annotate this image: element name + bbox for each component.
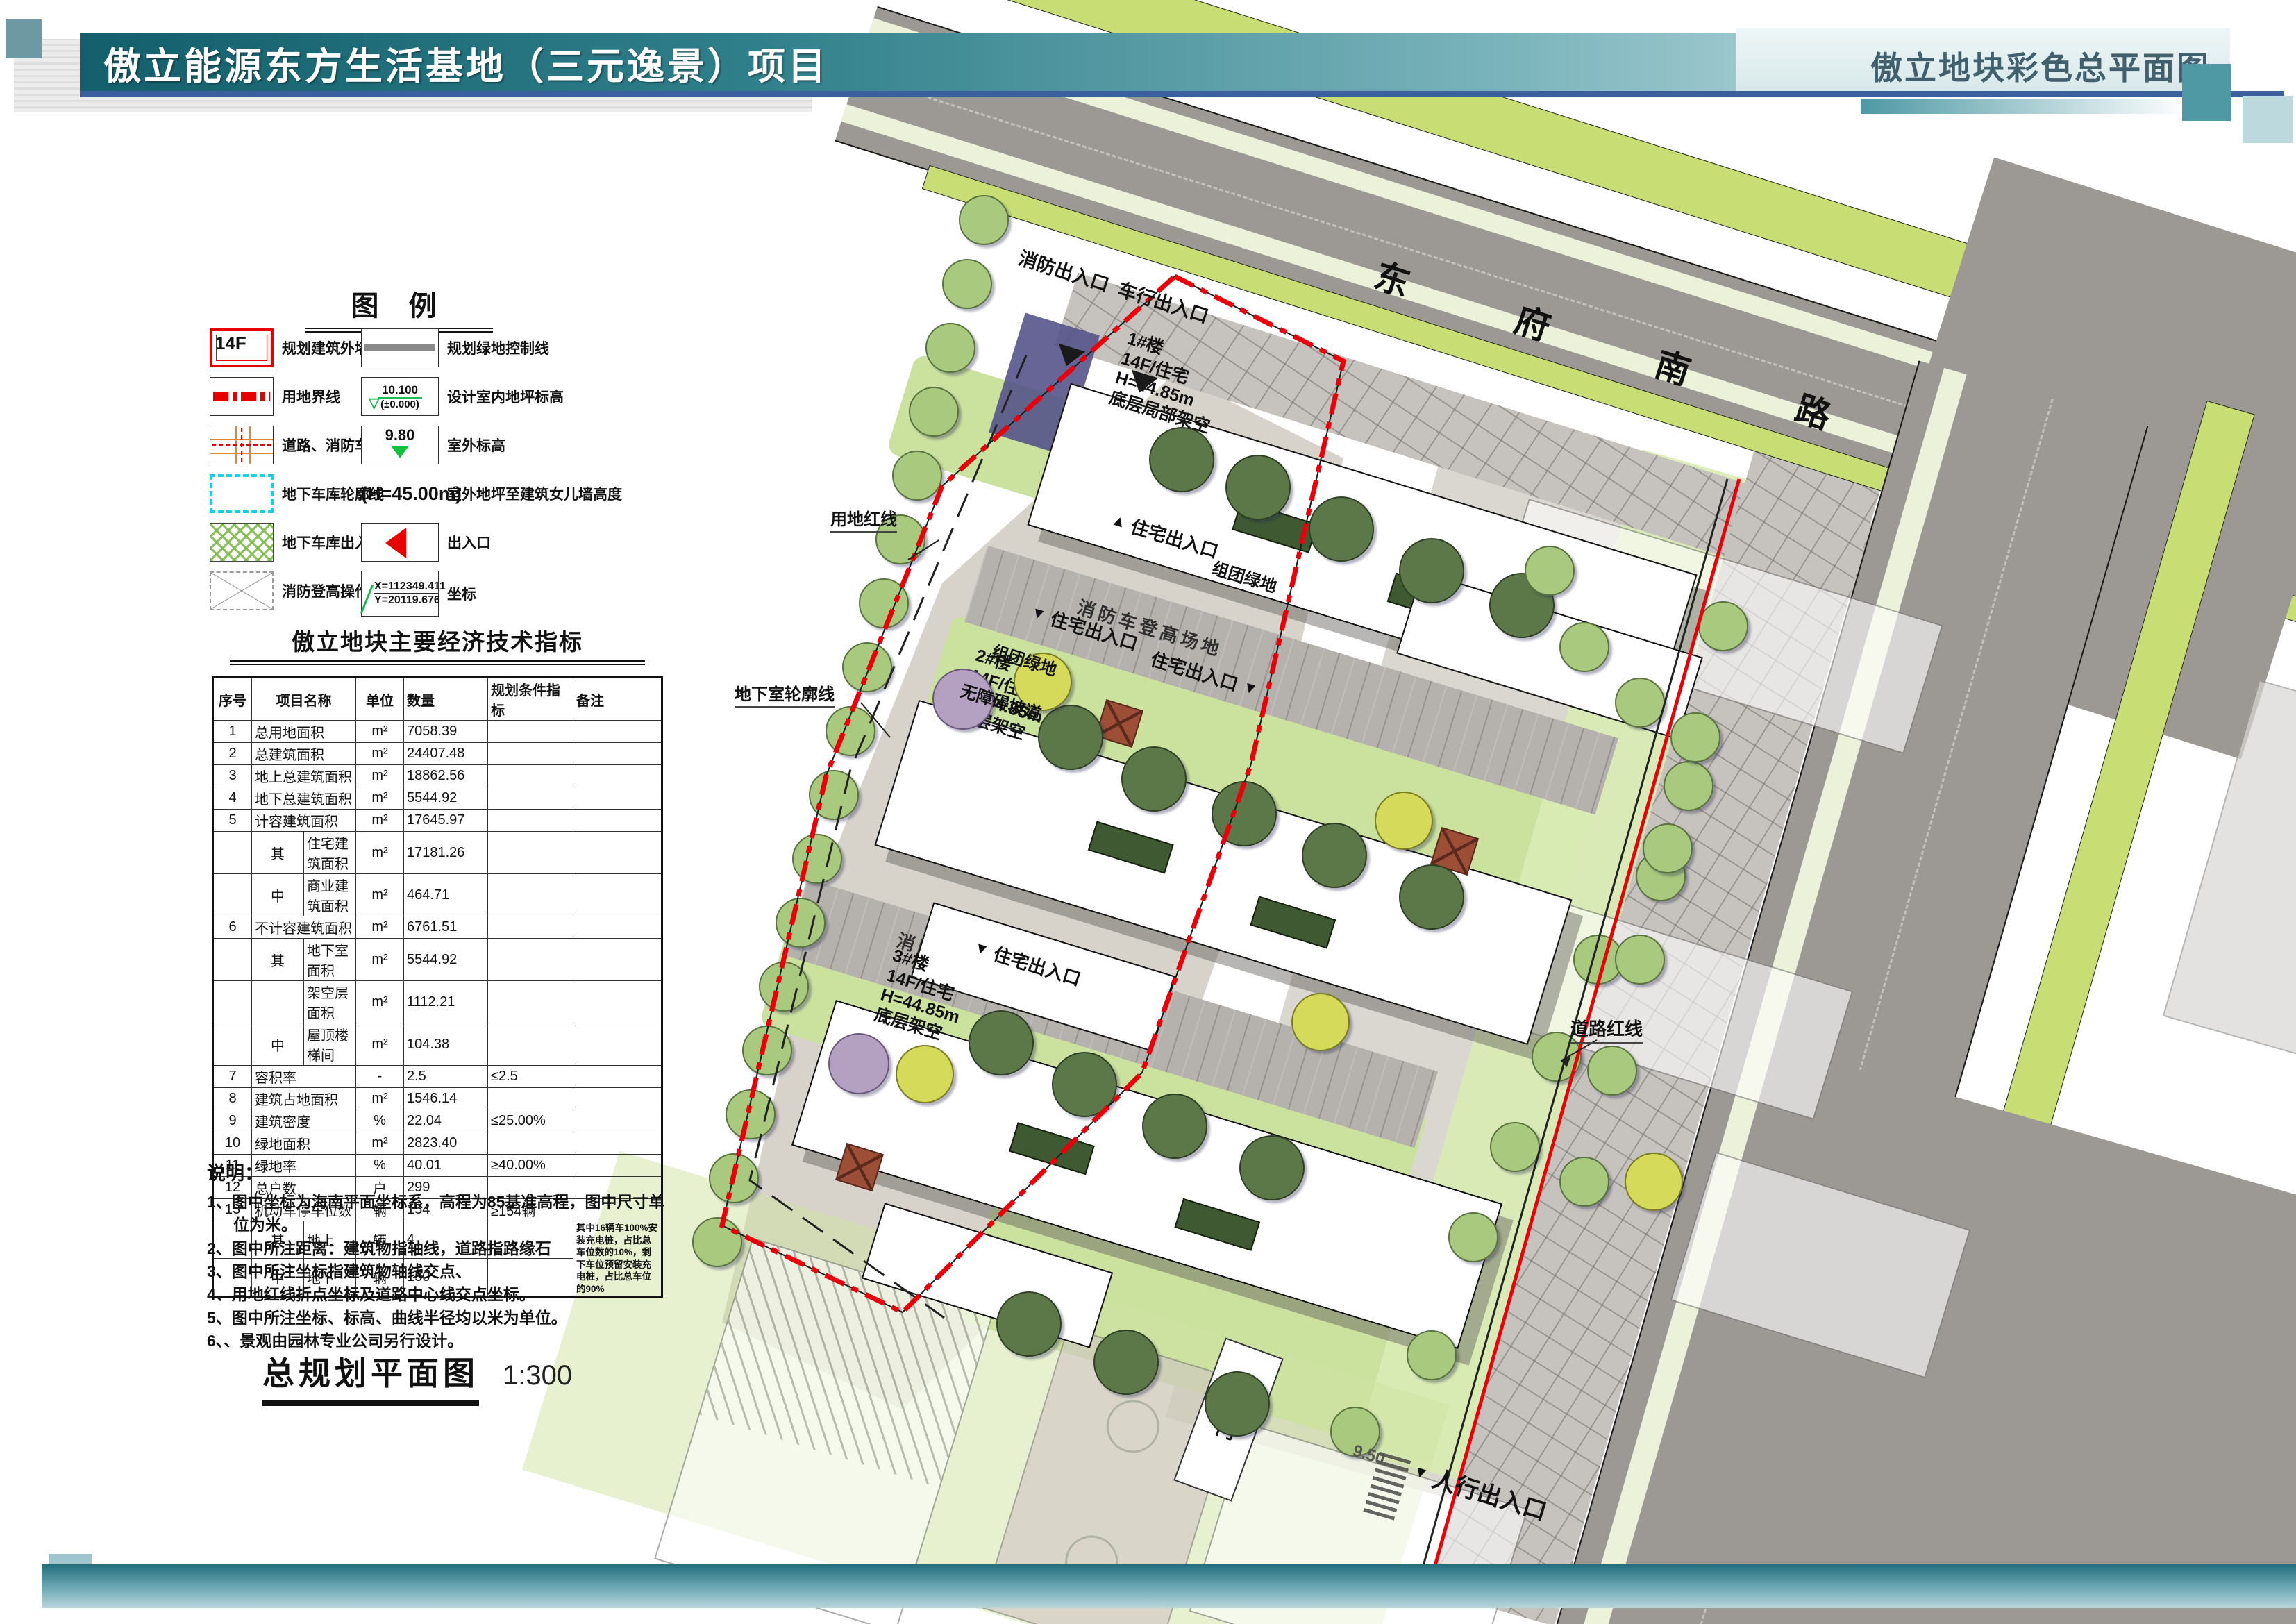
note-item: 4、用地红线折点坐标及道路中心线交点坐标。 (207, 1283, 679, 1306)
tree-icon (1615, 935, 1665, 985)
indicator-row: 其住宅建筑面积m²17181.26 (213, 832, 662, 874)
tree-icon (1375, 792, 1433, 850)
col-qty: 数量 (404, 678, 488, 721)
corner-square (6, 19, 42, 58)
tree-icon (709, 1153, 759, 1203)
tree-icon (1291, 993, 1350, 1051)
tree-icon (776, 898, 826, 948)
green-control-line-symbol (361, 328, 439, 367)
header-square-teal (2182, 64, 2231, 121)
tree-icon (859, 578, 909, 628)
tree-icon (828, 1033, 889, 1094)
tree-icon (792, 834, 842, 884)
coordinate-slash-icon (360, 585, 374, 614)
note-item: 5、图中所注坐标、标高、曲线半径均以米为单位。 (207, 1307, 679, 1330)
indicator-row: 4地下总建筑面积m²5544.92 (213, 787, 662, 810)
tree-icon (1121, 746, 1187, 812)
tree-icon (1448, 1212, 1498, 1262)
notes-panel: 说明： 1、图中坐标为海南平面坐标系，高程为85基准高程，图中尺寸单位为米。 2… (207, 1158, 679, 1353)
tree-icon (1625, 1153, 1683, 1211)
tree-icon (842, 642, 892, 692)
tree-icon (1407, 1330, 1457, 1380)
indicator-row: 中商业建筑面积m²464.71 (213, 874, 662, 916)
tree-icon (1142, 1094, 1207, 1159)
note-item: 1、图中坐标为海南平面坐标系，高程为85基准高程，图中尺寸单位为米。 (207, 1191, 679, 1237)
tree-icon (942, 259, 992, 309)
indicator-row: 7容积率-2.5≤2.5 (213, 1066, 662, 1088)
level-triangle-icon (391, 446, 409, 458)
legend-item: 规划绿地控制线 (361, 324, 622, 372)
height-note-symbol: (H=45.00m) (361, 474, 439, 513)
tree-icon (1525, 546, 1575, 596)
tree-icon (1587, 1046, 1637, 1096)
plan-scale: 1:300 (503, 1360, 572, 1391)
header-rule (80, 91, 2284, 97)
tree-icon (1239, 1135, 1305, 1200)
tree-icon (1490, 1122, 1540, 1172)
header-bar: 傲立能源东方生活基地（三元逸景）项目 (80, 33, 1750, 92)
tree-icon (826, 706, 875, 756)
sheet: 消防车登高场地 消防车登高场地 1#楼14F/住宅 H=44.85m底层局部架空… (0, 0, 2296, 1624)
indicator-row: 架空层面积m²1112.21 (213, 981, 662, 1023)
tree-icon (1212, 781, 1277, 846)
header-right-panel: 傲立地块彩色总平面图 (1736, 28, 2230, 93)
plan-title: 总规划平面图 (262, 1348, 479, 1406)
legend-item: X=112349.411 Y=20119.676 坐标 (361, 567, 622, 621)
tree-icon (1399, 864, 1464, 930)
tree-icon (1615, 678, 1665, 728)
tree-icon (959, 195, 1009, 245)
coordinate-symbol: X=112349.411 Y=20119.676 (361, 571, 439, 617)
basement-outline-label: 地下室轮廓线 (735, 680, 835, 708)
tree-icon (1698, 601, 1748, 651)
legend-item: 出入口 (361, 518, 622, 567)
tree-icon (742, 1026, 792, 1075)
indicator-row: 6不计容建筑面积m²6761.51 (213, 916, 662, 939)
note-item: 3、图中所注坐标指建筑物轴线交点、 (207, 1260, 679, 1283)
indoor-level-symbol: ▽ 10.100 (±0.000) (361, 377, 439, 416)
building-outline-symbol: 14F (210, 328, 274, 367)
outdoor-level-symbol: 9.80 (361, 426, 439, 464)
indicator-row: 10绿地面积m²2823.40 (213, 1132, 662, 1155)
tree-icon (759, 962, 809, 1012)
sheet-title: 傲立能源东方生活基地（三元逸景）项目 (80, 35, 828, 90)
tree-icon (1302, 823, 1367, 888)
indicators-title: 傲立地块主要经济技术指标 (230, 623, 645, 665)
tree-icon (1038, 705, 1103, 770)
legend-item: ▽ 10.100 (±0.000) 设计室内地坪标高 (361, 372, 622, 421)
col-unit: 单位 (356, 678, 404, 721)
indicator-row: 中屋顶楼梯间m²104.38 (213, 1023, 662, 1066)
road-redline-label: 道路红线 (1570, 1015, 1643, 1044)
indicator-row: 8建筑占地面积m²1546.14 (213, 1088, 662, 1110)
tree-icon (896, 1045, 954, 1103)
header-square-light (2243, 96, 2293, 143)
indicator-row: 2总建筑面积m²24407.48 (213, 743, 662, 765)
site-boundary-symbol (210, 377, 274, 416)
tree-icon (1664, 761, 1713, 811)
indicator-row: 9建筑密度%22.04≤25.00% (213, 1110, 662, 1132)
entrance-arrow-symbol (361, 523, 439, 562)
tree-icon (892, 451, 942, 501)
fire-platform-symbol (210, 571, 274, 610)
note-item: 2、图中所注距离：建筑物指轴线，道路指路缘石 (207, 1237, 679, 1260)
tree-icon (1559, 1157, 1609, 1207)
level-check-icon: ▽ (369, 394, 379, 412)
indicator-row: 5计容建筑面积m²17645.97 (213, 810, 662, 832)
legend-right-column: 规划绿地控制线 ▽ 10.100 (±0.000) 设计室内地坪标高 9.80 … (361, 324, 622, 621)
indicator-row: 其地下室面积m²5544.92 (213, 939, 662, 981)
road-symbol (210, 426, 274, 464)
col-target: 规划条件指标 (488, 678, 573, 721)
tree-icon (996, 1291, 1062, 1357)
col-remark: 备注 (573, 678, 662, 721)
garage-outline-symbol (210, 474, 274, 513)
tree-icon (1205, 1371, 1270, 1437)
tree-icon (1643, 823, 1693, 873)
garage-entrance-symbol (210, 523, 274, 562)
tree-icon (809, 770, 859, 820)
plan-title-block: 总规划平面图 1:300 (262, 1348, 572, 1406)
col-seq: 序号 (213, 678, 252, 721)
tree-icon (1149, 427, 1214, 492)
tree-icon (1052, 1052, 1117, 1117)
tree-icon (1309, 496, 1374, 562)
header-teal-band (1861, 99, 2187, 114)
col-name: 项目名称 (252, 678, 356, 721)
tree-icon (726, 1089, 776, 1139)
tree-icon (1670, 712, 1720, 762)
tree-icon (1399, 538, 1464, 603)
indicator-row: 1总用地面积m²7058.39 (213, 721, 662, 743)
tree-icon (1093, 1330, 1159, 1395)
tree-icon (1225, 455, 1291, 520)
tree-icon (909, 387, 959, 437)
notes-title: 说明： (207, 1158, 679, 1185)
tree-icon (969, 1010, 1034, 1075)
tree-icon (925, 323, 975, 373)
tree-icon (692, 1217, 742, 1267)
legend-item: 9.80 室外标高 (361, 421, 622, 469)
drawing-name: 傲立地块彩色总平面图 (1870, 43, 2230, 93)
legend-item: (H=45.00m) 室外地坪至建筑女儿墙高度 (361, 469, 622, 518)
indicator-row: 3地上总建筑面积m²18862.56 (213, 765, 662, 787)
footer-band (42, 1564, 2296, 1608)
site-redline-label: 用地红线 (830, 505, 897, 533)
tree-icon (1559, 622, 1609, 672)
